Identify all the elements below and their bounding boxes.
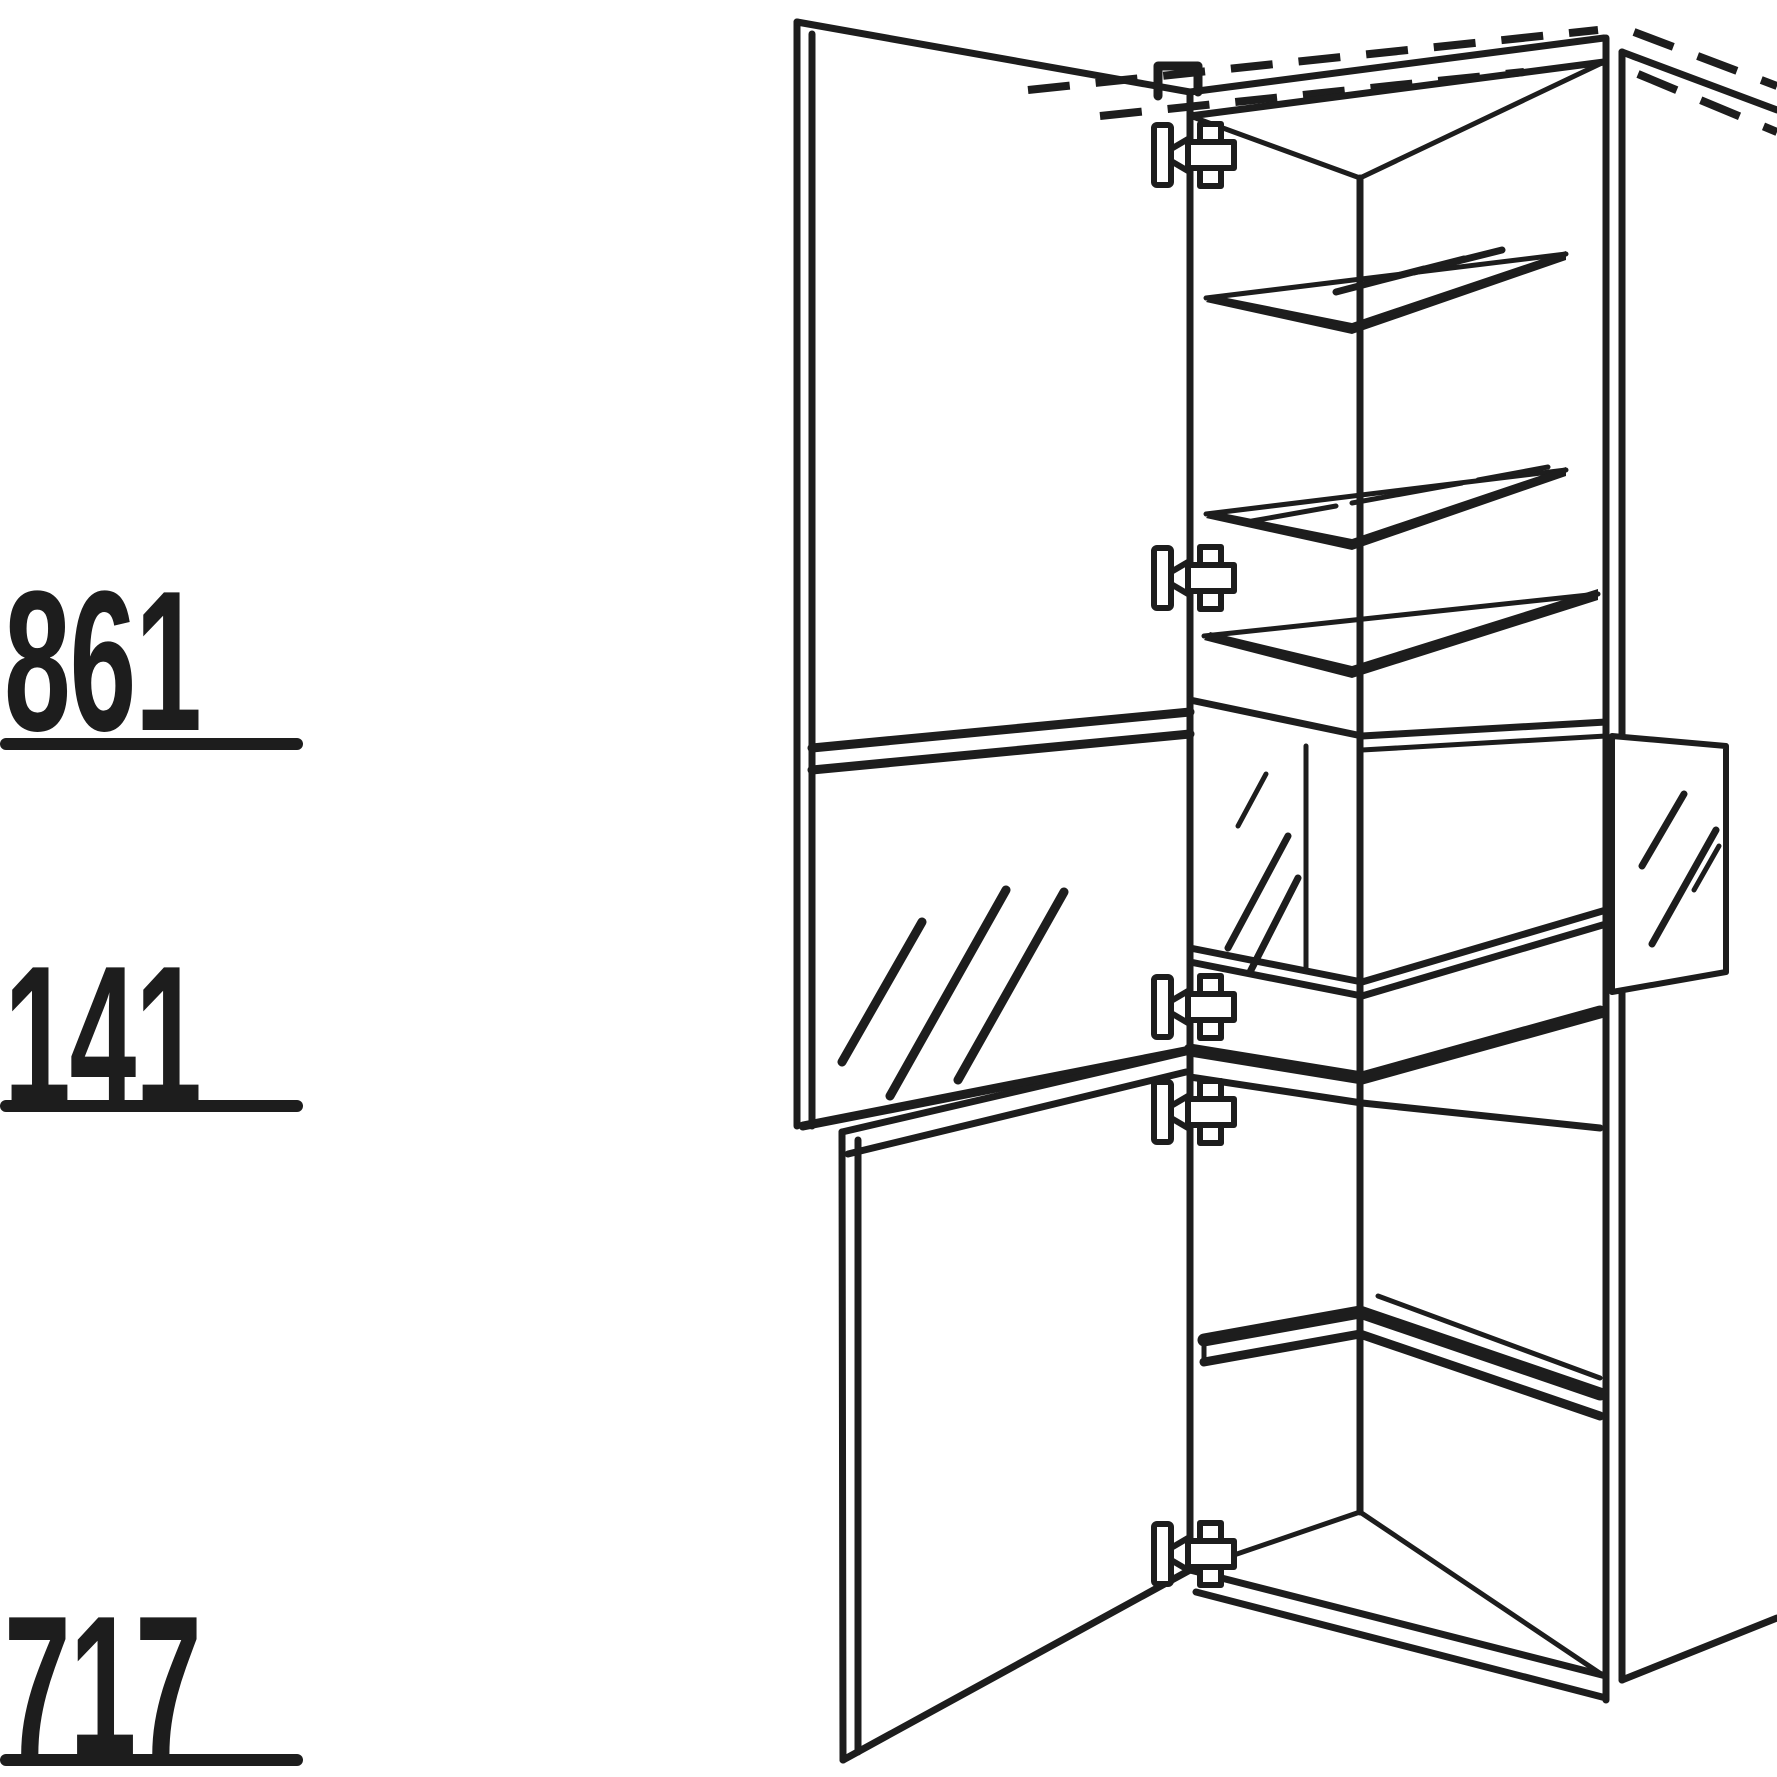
lower-door-open	[842, 1052, 1190, 1760]
right-side-glass-panel	[1612, 736, 1726, 992]
mid-section-bottom-rails	[1190, 910, 1606, 1128]
hinge-icon	[1154, 124, 1234, 186]
hinges	[1154, 124, 1234, 1585]
mid-section-top-shelf	[1190, 589, 1606, 750]
glass-slash-mark	[890, 890, 1006, 1096]
interior-left-glass-panel	[1228, 746, 1306, 972]
glass-slash-mark	[1228, 836, 1288, 948]
hinge-icon	[1154, 547, 1234, 609]
lower-wood-shelf	[1204, 1296, 1600, 1416]
cabinet-technical-drawing	[0, 0, 1777, 1777]
glass-slash-mark	[958, 892, 1064, 1080]
glass-slash-mark	[1238, 774, 1266, 826]
hinge-icon	[1154, 1523, 1234, 1585]
technical-diagram-page: 861 141 717	[0, 0, 1777, 1777]
hinge-icon	[1154, 1081, 1234, 1143]
upper-glass-shelf-2	[1206, 467, 1566, 550]
hinge-icon	[1154, 976, 1234, 1038]
glass-slash-mark	[842, 922, 922, 1062]
upper-glass-shelf-1	[1206, 250, 1566, 334]
upper-door-open	[797, 22, 1190, 1126]
